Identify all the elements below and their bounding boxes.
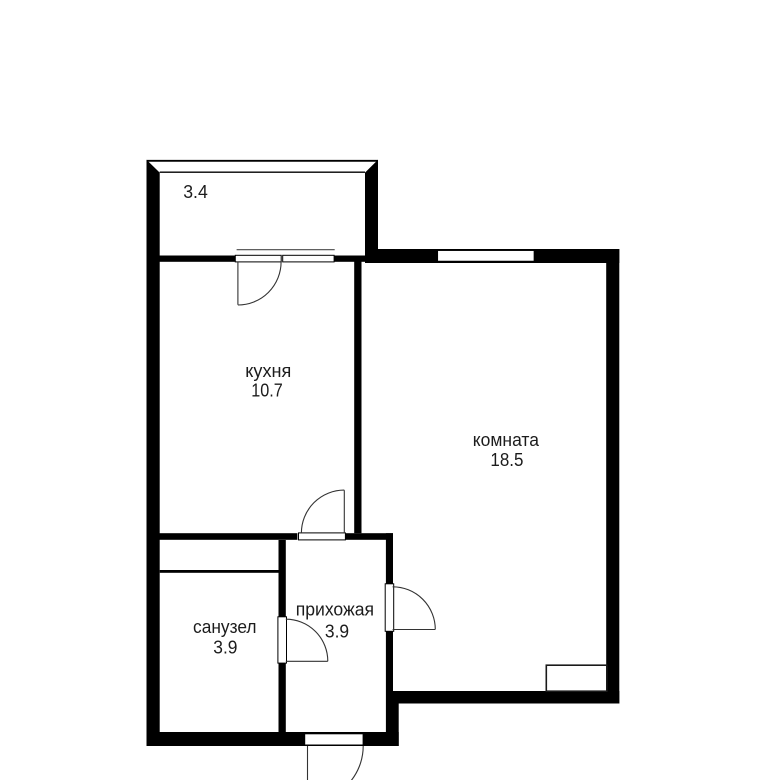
svg-text:прихожая: прихожая <box>296 600 374 620</box>
svg-text:18.5: 18.5 <box>490 450 523 470</box>
svg-text:кухня: кухня <box>245 361 291 381</box>
svg-text:3.4: 3.4 <box>183 182 208 202</box>
svg-text:10.7: 10.7 <box>251 381 283 401</box>
svg-text:3.9: 3.9 <box>325 621 349 641</box>
svg-text:санузел: санузел <box>193 617 257 637</box>
svg-text:комната: комната <box>473 430 540 450</box>
svg-text:3.9: 3.9 <box>213 637 237 657</box>
